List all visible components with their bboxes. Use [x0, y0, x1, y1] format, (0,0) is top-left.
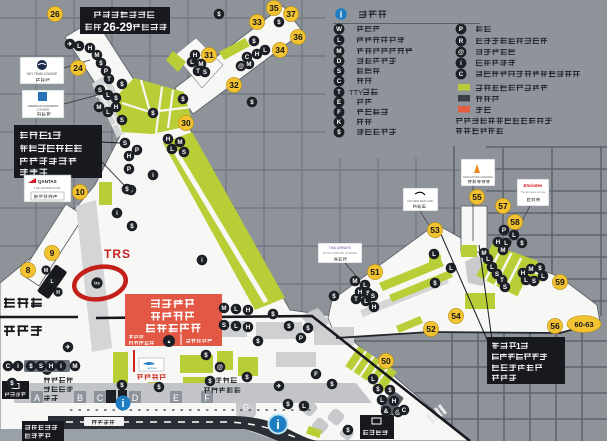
- svg-text:34: 34: [275, 45, 285, 55]
- svg-text:H: H: [496, 239, 501, 246]
- svg-text:M: M: [96, 104, 101, 111]
- svg-text:57: 57: [498, 201, 508, 211]
- svg-text:55: 55: [472, 192, 482, 202]
- svg-text:S: S: [203, 69, 207, 76]
- svg-text:L: L: [541, 273, 545, 280]
- svg-text:H: H: [246, 324, 251, 331]
- svg-text:THAI AIRWAYS: THAI AIRWAYS: [329, 246, 351, 250]
- svg-text:$: $: [252, 38, 256, 45]
- svg-text:L: L: [234, 323, 238, 330]
- svg-text:51: 51: [370, 267, 380, 277]
- svg-text:26-29: 26-29: [103, 22, 132, 34]
- svg-text:@: @: [217, 364, 223, 371]
- svg-text:✈: ✈: [276, 383, 281, 390]
- svg-text:$: $: [287, 323, 291, 330]
- svg-text:M: M: [44, 268, 48, 274]
- svg-text:L: L: [380, 397, 384, 404]
- svg-text:$: $: [181, 96, 185, 103]
- svg-text:i: i: [17, 363, 19, 370]
- svg-text:P: P: [299, 335, 303, 342]
- svg-text:@: @: [238, 63, 244, 70]
- svg-text:T: T: [107, 76, 111, 83]
- svg-text:$: $: [520, 240, 524, 247]
- svg-text:31: 31: [204, 50, 214, 60]
- svg-text:i: i: [121, 398, 124, 410]
- svg-text:S: S: [503, 284, 507, 291]
- svg-text:S: S: [120, 117, 124, 124]
- svg-text:i: i: [116, 210, 118, 217]
- svg-text:$: $: [99, 60, 103, 67]
- svg-text:$: $: [204, 352, 208, 359]
- svg-text:F: F: [204, 393, 210, 403]
- svg-text:$: $: [217, 11, 221, 18]
- svg-text:TTY: TTY: [349, 88, 363, 97]
- svg-text:L: L: [449, 265, 453, 272]
- svg-text:QANTAS: QANTAS: [38, 179, 57, 184]
- svg-text:$: $: [376, 386, 380, 393]
- svg-text:M: M: [528, 266, 533, 273]
- svg-text:L: L: [512, 232, 516, 239]
- svg-text:L: L: [337, 37, 341, 44]
- svg-text:$: $: [10, 380, 14, 387]
- svg-text:10: 10: [75, 187, 85, 197]
- svg-text:E: E: [337, 99, 341, 106]
- svg-text:58: 58: [510, 217, 520, 227]
- svg-text:F: F: [314, 371, 318, 378]
- svg-text:P: P: [459, 26, 463, 33]
- svg-text:9: 9: [50, 248, 55, 258]
- svg-text:$: $: [151, 110, 155, 117]
- svg-text:1: 1: [47, 131, 53, 142]
- svg-text:B: B: [77, 393, 83, 403]
- svg-text:H: H: [114, 104, 119, 111]
- svg-text:airlines: airlines: [147, 366, 157, 370]
- svg-text:P: P: [135, 147, 139, 154]
- svg-text:i: i: [60, 363, 62, 370]
- svg-text:1: 1: [516, 341, 521, 351]
- svg-text:L: L: [170, 146, 174, 153]
- svg-text:L: L: [106, 109, 110, 116]
- svg-text:P: P: [502, 227, 506, 234]
- svg-text:Emirates: Emirates: [523, 183, 543, 188]
- svg-text:60-63: 60-63: [574, 320, 593, 329]
- svg-text:H: H: [56, 290, 60, 296]
- svg-text:D: D: [337, 58, 342, 65]
- svg-text:S: S: [123, 140, 127, 147]
- svg-text:AIR NEW ZEALAND: AIR NEW ZEALAND: [407, 199, 433, 203]
- svg-text:$: $: [256, 338, 260, 345]
- svg-text:8: 8: [26, 265, 31, 275]
- svg-text:A: A: [34, 393, 40, 403]
- svg-text:G: G: [243, 403, 249, 412]
- svg-text:53: 53: [430, 225, 440, 235]
- svg-text:$: $: [125, 186, 129, 193]
- svg-text:E: E: [173, 393, 179, 403]
- svg-text:$: $: [120, 382, 124, 389]
- svg-text:D: D: [132, 393, 139, 403]
- svg-text:H: H: [166, 136, 171, 143]
- svg-text:$: $: [286, 401, 290, 408]
- svg-text:$: $: [157, 384, 161, 391]
- svg-text:P: P: [127, 166, 131, 173]
- svg-text:ROYAL ORCHID LOUNGE: ROYAL ORCHID LOUNGE: [323, 251, 357, 255]
- svg-text:T: T: [196, 68, 200, 75]
- svg-text:L: L: [302, 403, 306, 410]
- svg-text:$: $: [433, 280, 437, 287]
- svg-text:C: C: [402, 407, 407, 414]
- svg-text:50: 50: [381, 356, 391, 366]
- svg-text:$: $: [250, 99, 254, 106]
- svg-text:S: S: [532, 278, 536, 285]
- svg-text:THE QANTAS CLUB: THE QANTAS CLUB: [34, 186, 60, 190]
- svg-text:SKY TEAM LOUNGE: SKY TEAM LOUNGE: [27, 72, 57, 76]
- svg-text:52: 52: [426, 324, 436, 334]
- svg-text:M: M: [336, 48, 341, 55]
- svg-text:$: $: [130, 223, 134, 230]
- svg-text:T: T: [337, 89, 341, 96]
- svg-text:M: M: [500, 247, 505, 254]
- svg-text:$: $: [306, 325, 310, 332]
- svg-text:✈: ✈: [67, 41, 72, 48]
- svg-text:H: H: [246, 307, 251, 314]
- svg-text:H: H: [88, 45, 93, 52]
- svg-text:R: R: [459, 38, 464, 45]
- svg-text:L: L: [524, 277, 528, 284]
- svg-text:24: 24: [73, 63, 83, 73]
- svg-text:37: 37: [286, 9, 296, 19]
- svg-text:32: 32: [229, 80, 239, 90]
- svg-text:$: $: [245, 374, 249, 381]
- svg-text:36: 36: [293, 32, 303, 42]
- svg-text:@: @: [458, 49, 464, 56]
- svg-text:L: L: [486, 256, 490, 263]
- svg-text:H: H: [127, 153, 132, 160]
- svg-text:L: L: [371, 376, 375, 383]
- svg-text:56: 56: [550, 321, 560, 331]
- svg-text:C: C: [459, 71, 464, 78]
- svg-text:L: L: [432, 251, 436, 258]
- svg-text:59: 59: [555, 277, 565, 287]
- svg-text:$: $: [271, 311, 275, 318]
- svg-text:M: M: [246, 61, 251, 68]
- svg-text:S: S: [222, 322, 226, 329]
- svg-text:30: 30: [181, 118, 191, 128]
- svg-text:W: W: [336, 26, 342, 33]
- svg-text:M: M: [177, 139, 182, 146]
- svg-text:M: M: [94, 52, 99, 59]
- svg-text:✈: ✈: [65, 344, 70, 351]
- svg-text:i: i: [460, 60, 462, 67]
- svg-text:L: L: [364, 298, 368, 305]
- svg-text:L: L: [190, 59, 194, 66]
- svg-text:$: $: [114, 95, 118, 102]
- svg-text:▲: ▲: [167, 339, 172, 345]
- svg-text:$: $: [337, 129, 341, 136]
- svg-text:M: M: [221, 305, 226, 312]
- svg-text:$: $: [388, 387, 392, 394]
- svg-text:H: H: [392, 398, 397, 405]
- svg-text:T: T: [354, 296, 358, 303]
- svg-text:$: $: [120, 81, 124, 88]
- svg-text:TRS: TRS: [104, 247, 131, 261]
- svg-text:F: F: [337, 109, 341, 116]
- svg-text:K: K: [337, 119, 342, 126]
- svg-text:$: $: [330, 381, 334, 388]
- svg-text:C: C: [337, 78, 342, 85]
- svg-text:SINGAPORE AIRLINES: SINGAPORE AIRLINES: [463, 175, 493, 179]
- svg-text:LOUNGE: LOUNGE: [37, 108, 50, 112]
- svg-text:M: M: [352, 278, 357, 285]
- svg-text:$: $: [332, 293, 336, 300]
- svg-text:$: $: [346, 427, 350, 434]
- svg-text:26: 26: [50, 9, 60, 19]
- svg-text:L: L: [77, 43, 81, 50]
- svg-text:L: L: [263, 47, 267, 54]
- svg-text:L: L: [234, 306, 238, 313]
- svg-text:i: i: [201, 257, 203, 264]
- svg-text:S: S: [98, 87, 102, 94]
- svg-text:i: i: [340, 10, 343, 20]
- svg-text:$: $: [277, 19, 281, 26]
- svg-text:L: L: [50, 279, 53, 285]
- svg-text:S: S: [39, 363, 43, 370]
- svg-text:M: M: [72, 363, 77, 370]
- svg-text:H: H: [255, 51, 260, 58]
- svg-text:trs: trs: [94, 281, 100, 286]
- svg-text:$: $: [208, 378, 212, 385]
- svg-text:54: 54: [451, 311, 461, 321]
- svg-text:S: S: [182, 149, 186, 156]
- svg-text:$: $: [29, 363, 33, 370]
- svg-text:The Emirates Lounge: The Emirates Lounge: [521, 190, 546, 194]
- svg-text:S: S: [337, 68, 341, 75]
- svg-text:35: 35: [269, 3, 279, 13]
- svg-text:C: C: [6, 363, 11, 370]
- svg-text:i: i: [152, 172, 154, 179]
- svg-text:&: &: [384, 408, 389, 415]
- svg-text:C: C: [97, 393, 104, 403]
- svg-text:H: H: [372, 304, 377, 311]
- svg-text:S: S: [371, 293, 375, 300]
- svg-text:33: 33: [252, 17, 262, 27]
- svg-text:H: H: [49, 363, 54, 370]
- svg-text:L: L: [106, 92, 110, 99]
- svg-text:i: i: [276, 417, 280, 432]
